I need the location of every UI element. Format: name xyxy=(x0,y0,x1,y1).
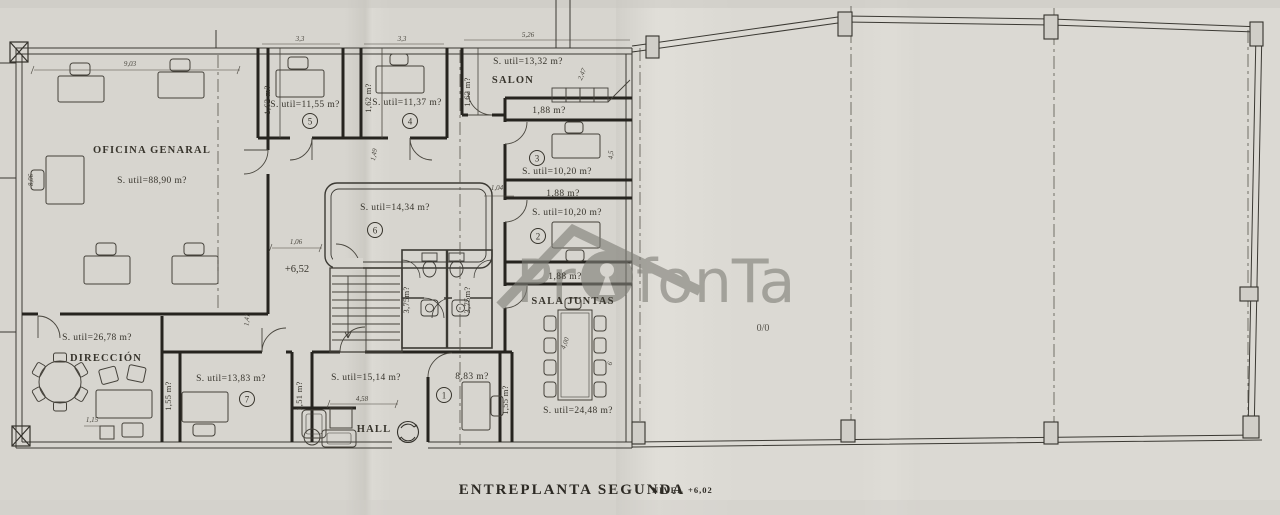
corridor2-dim: 1,88 m? xyxy=(546,189,579,199)
svg-text:6: 6 xyxy=(373,226,378,236)
oficina-area: S. util=88,90 m? xyxy=(117,176,187,186)
room4-dim: 1,62 m? xyxy=(363,83,373,112)
watermark-text-right: fonTa xyxy=(636,247,795,317)
dim-4-5: 4,5 xyxy=(607,150,615,160)
corridor1-dim: 1,88 m? xyxy=(532,106,565,116)
bath-left-area: 3,75m? xyxy=(401,286,411,313)
direccion-area: S. util=26,78 m? xyxy=(62,333,132,343)
open-area-note: 0/0 xyxy=(757,323,770,334)
sala-juntas-name: SALA JUNTAS xyxy=(531,296,614,307)
dim-8-06: 8,06 xyxy=(27,173,35,186)
svg-text:4: 4 xyxy=(408,117,413,127)
dim-5-26: 5,26 xyxy=(522,31,535,39)
dim-1-04: 1,04 xyxy=(491,184,504,192)
room7-dim-left: 1,55 m? xyxy=(163,381,173,410)
direccion-name: DIRECCIÓN xyxy=(70,352,142,364)
level-mark: +6,52 xyxy=(285,264,309,275)
room1-dim: 1,55 m? xyxy=(500,385,510,414)
dim-3-3-a: 3,3 xyxy=(295,35,305,43)
bath-right-area: 3,75m? xyxy=(462,286,472,313)
room1-area: 8,83 m? xyxy=(455,372,488,382)
dim-9-03: 9,03 xyxy=(124,60,137,68)
hall-area: S. util=15,14 m? xyxy=(331,373,401,383)
floor-plan-drawing: Pr fonTa OFICINA GENARAL S. util=88,90 m… xyxy=(0,0,1280,515)
svg-text:5: 5 xyxy=(308,117,313,127)
dim-1-06: 1,06 xyxy=(290,238,303,246)
room5-dim: 1,62 m? xyxy=(262,85,272,114)
dim-4-58: 4,58 xyxy=(356,395,369,403)
dim-3-3-b: 3,3 xyxy=(397,35,407,43)
dim-1-15: 1,15 xyxy=(86,416,99,424)
room7-dim-right: 1,51 m? xyxy=(294,381,304,410)
hall-name: HALL xyxy=(357,424,392,435)
sala-juntas-area: S. util=24,48 m? xyxy=(543,406,613,416)
dim-1-41: 1,41 xyxy=(242,313,251,326)
level-value: +6,02 xyxy=(688,485,713,495)
svg-text:7: 7 xyxy=(245,395,250,405)
room5-area: S. util=11,55 m? xyxy=(270,100,339,110)
floor-plan-scan: Pr fonTa OFICINA GENARAL S. util=88,90 m… xyxy=(0,0,1280,515)
room3-area: S. util=10,20 m? xyxy=(522,167,592,177)
level-label: NIVEL xyxy=(652,485,684,495)
footer: ENTREPLANTA SEGUNDA NIVEL +6,02 xyxy=(459,482,713,498)
svg-text:2: 2 xyxy=(536,232,541,242)
oficina-name: OFICINA GENARAL xyxy=(93,145,211,156)
room6-area: S. util=14,34 m? xyxy=(360,203,430,213)
svg-text:3: 3 xyxy=(535,154,540,164)
room7-area: S. util=13,83 m? xyxy=(196,374,266,384)
room4-area: S. util=11,37 m? xyxy=(372,98,441,108)
room2-area: S. util=10,20 m? xyxy=(532,208,602,218)
corridor3-dim: 1,88 m? xyxy=(548,272,581,282)
svg-text:1: 1 xyxy=(442,391,447,401)
salon-dim: 1,62 m? xyxy=(462,77,472,106)
salon-area: S. util=13,32 m? xyxy=(493,57,563,67)
salon-name: SALON xyxy=(492,75,534,86)
